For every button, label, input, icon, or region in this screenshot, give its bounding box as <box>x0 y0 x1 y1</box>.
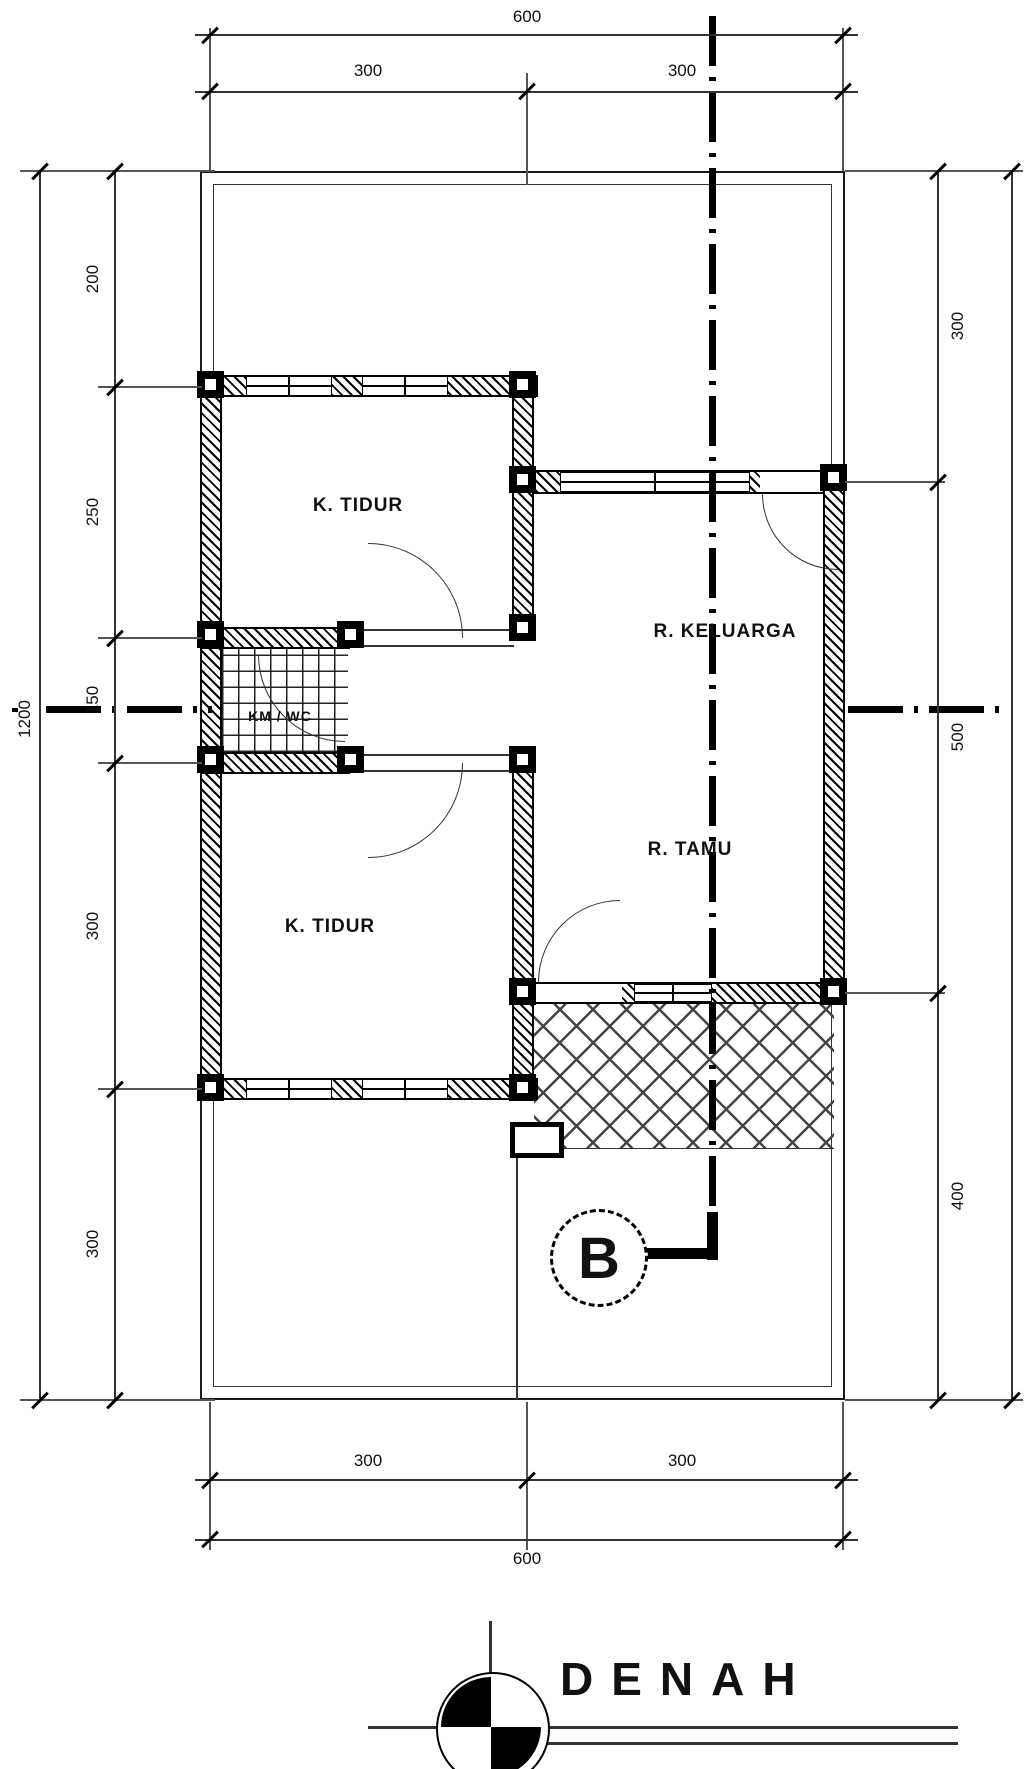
window-bedroom-bottom-1 <box>246 1079 332 1099</box>
dim-chain-left-inner <box>114 171 116 1400</box>
room-label-bedroom-top: K. TIDUR <box>268 495 448 517</box>
dim-bottom-overall: 600 <box>497 1548 557 1570</box>
column-block <box>337 621 364 648</box>
section-line-b <box>709 16 716 1212</box>
dim-left-s5: 300 <box>82 1208 104 1280</box>
window-bedroom-top-1 <box>246 376 332 396</box>
dim-bottom-left: 300 <box>338 1450 398 1472</box>
hall-opening-line <box>350 754 514 756</box>
room-label-living-room: R. TAMU <box>600 839 780 861</box>
window-familyroom <box>560 472 750 492</box>
column-block <box>197 621 224 648</box>
dim-right-s1: 300 <box>947 290 969 362</box>
dimension-line-bottom-overall <box>195 1539 858 1541</box>
entry-step <box>510 1122 564 1158</box>
wall-center-lower <box>512 752 534 1100</box>
dim-top-left: 300 <box>338 60 398 82</box>
column-block <box>509 371 536 398</box>
wall-center-upper <box>512 375 534 640</box>
north-symbol-quadrant-nw <box>441 1677 491 1727</box>
dim-bottom-right: 300 <box>652 1450 712 1472</box>
door-opening-entry <box>536 984 622 1002</box>
dim-right-s3: 400 <box>947 1160 969 1232</box>
dim-right-s2: 500 <box>947 701 969 773</box>
section-marker-label: B <box>578 1225 620 1292</box>
dim-left-overall: 1200 <box>14 679 36 759</box>
dim-left-s4: 300 <box>82 890 104 962</box>
room-label-family-room: R. KELUARGA <box>625 621 825 643</box>
dim-chain-right-inner <box>937 171 939 1400</box>
column-block <box>820 464 847 491</box>
section-marker-circle: B <box>550 1209 648 1307</box>
window-bedroom-top-2 <box>362 376 448 396</box>
column-block <box>820 978 847 1005</box>
column-block <box>509 978 536 1005</box>
column-block <box>509 746 536 773</box>
drawing-title: DENAH <box>560 1652 814 1706</box>
room-label-bedroom-bottom: K. TIDUR <box>240 916 420 938</box>
column-block <box>509 614 536 641</box>
extension-line <box>845 992 945 994</box>
dimension-line-top-overall <box>195 34 858 36</box>
extension-line <box>842 28 844 171</box>
porch-floor-hatch <box>534 1004 834 1149</box>
window-livingroom <box>634 984 712 1002</box>
column-block <box>337 746 364 773</box>
extension-line <box>845 481 945 483</box>
centerline-horizontal-left <box>46 706 212 713</box>
dim-chain-right-outer <box>1011 171 1013 1400</box>
dim-chain-left-outer <box>39 171 41 1400</box>
wall-left-exterior <box>200 375 222 1100</box>
column-block <box>509 1074 536 1101</box>
column-block <box>197 371 224 398</box>
centerline-horizontal-right <box>848 706 1010 713</box>
section-flag-horizontal <box>640 1248 714 1259</box>
floor-plan-drawing: B 600 300 300 300 300 600 1200 200 250 1… <box>0 0 1024 1769</box>
room-label-bathroom: KM / WC <box>220 708 340 724</box>
door-opening-familyroom <box>760 472 822 492</box>
column-block <box>509 466 536 493</box>
hall-opening-line <box>350 645 514 647</box>
path-edge-line <box>516 1158 518 1400</box>
column-block <box>197 746 224 773</box>
dim-top-right: 300 <box>652 60 712 82</box>
extension-line <box>209 28 211 171</box>
dim-left-s2: 250 <box>82 476 104 548</box>
dim-top-overall: 600 <box>497 6 557 28</box>
dim-left-s3: 150 <box>82 664 104 736</box>
title-underline-2 <box>500 1742 958 1745</box>
window-bedroom-bottom-2 <box>362 1079 448 1099</box>
dim-left-s1: 200 <box>82 243 104 315</box>
